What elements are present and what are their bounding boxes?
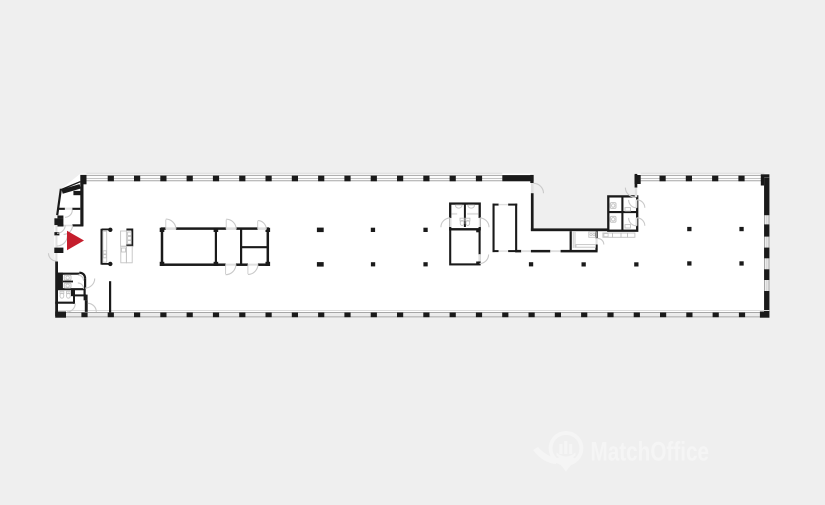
svg-text:MatchOffice: MatchOffice <box>591 436 710 466</box>
